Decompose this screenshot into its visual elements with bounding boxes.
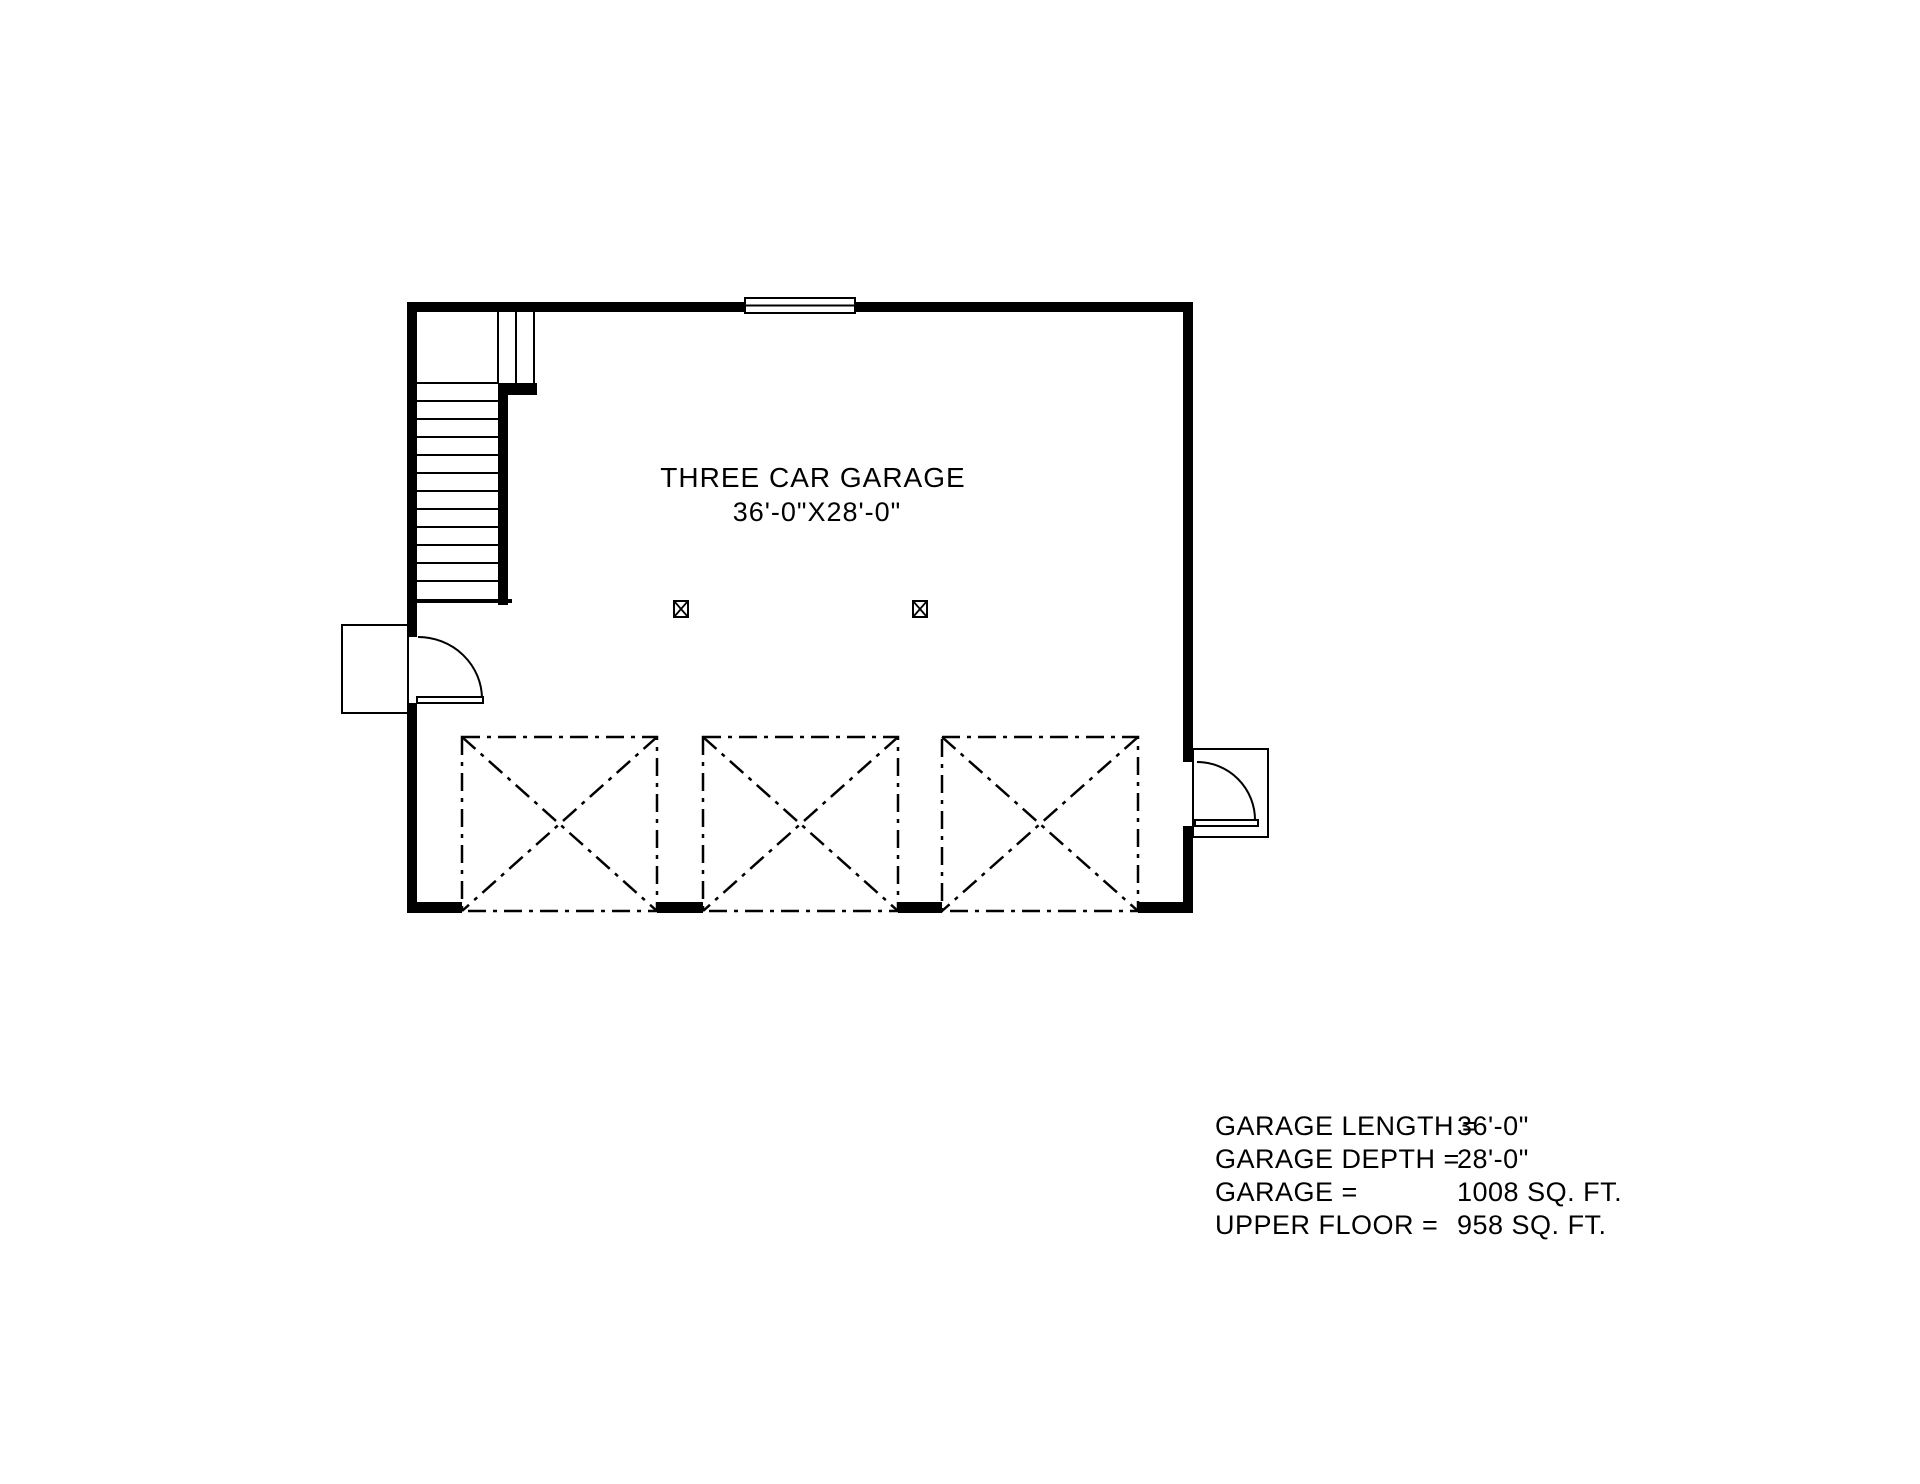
summary-label: UPPER FLOOR = [1215, 1209, 1447, 1242]
stair-side-wall [498, 383, 508, 605]
garage-door-bay-1 [462, 737, 657, 911]
summary-value: 1008 SQ. FT. [1447, 1176, 1622, 1209]
garage-door-bay-2 [703, 737, 898, 911]
stair-treads [417, 383, 498, 581]
wall-bottom-pier-1 [657, 902, 703, 913]
summary-label: GARAGE DEPTH = [1215, 1143, 1447, 1176]
summary-table: GARAGE LENGTH = 36'-0" GARAGE DEPTH = 28… [1215, 1110, 1622, 1242]
wall-top-left-segment [407, 302, 745, 312]
stair-bottom-line [407, 599, 512, 603]
room-label: THREE CAR GARAGE [563, 462, 1063, 494]
summary-label: GARAGE = [1215, 1176, 1447, 1209]
floor-plan-drawing [0, 0, 1920, 1484]
summary-row: UPPER FLOOR = 958 SQ. FT. [1215, 1209, 1622, 1242]
summary-row: GARAGE LENGTH = 36'-0" [1215, 1110, 1622, 1143]
summary-label: GARAGE LENGTH = [1215, 1110, 1447, 1143]
wall-bottom-segment-1 [407, 902, 462, 913]
door-swing-arc [418, 637, 482, 699]
wall-left-upper-segment [407, 302, 417, 637]
wall-right-lower-segment [1183, 826, 1193, 913]
stairs [407, 312, 537, 605]
entry-door-right [1193, 749, 1268, 837]
wall-top-right-segment [855, 302, 1193, 312]
wall-left-lower-segment [407, 703, 417, 913]
column-post-2 [913, 601, 927, 617]
door-leaf [417, 697, 483, 703]
summary-value: 28'-0" [1447, 1143, 1529, 1176]
entry-stoop-left [342, 625, 408, 713]
summary-value: 958 SQ. FT. [1447, 1209, 1607, 1242]
window-symbol [745, 298, 855, 313]
room-dimensions: 36'-0"X28'-0" [567, 497, 1067, 528]
door-leaf [1195, 820, 1258, 826]
floor-plan-sheet: THREE CAR GARAGE 36'-0"X28'-0" GARAGE LE… [0, 0, 1920, 1484]
summary-row: GARAGE DEPTH = 28'-0" [1215, 1143, 1622, 1176]
wall-bottom-segment-2 [1138, 902, 1193, 913]
summary-row: GARAGE = 1008 SQ. FT. [1215, 1176, 1622, 1209]
summary-value: 36'-0" [1447, 1110, 1529, 1143]
entry-door-left [342, 625, 483, 713]
column-post-1 [674, 601, 688, 617]
wall-right-upper-segment [1183, 302, 1193, 762]
garage-door-bay-3 [942, 737, 1138, 911]
wall-bottom-pier-2 [898, 902, 942, 913]
